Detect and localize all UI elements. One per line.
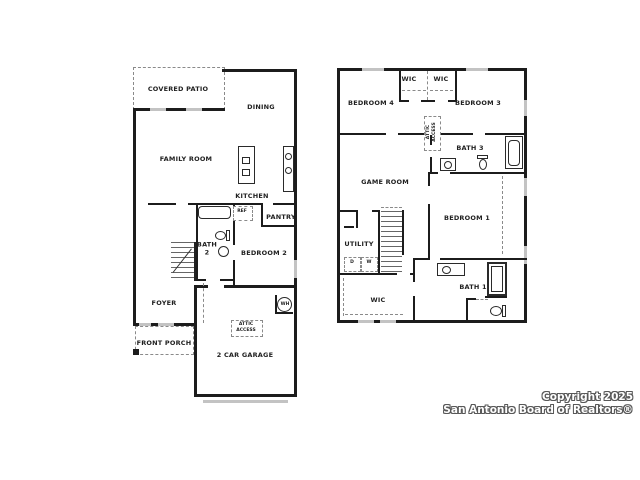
wall — [410, 273, 415, 275]
room-label-game-room: GAME ROOM — [361, 178, 409, 186]
room-label-pantry: PANTRY — [266, 213, 296, 221]
label-refrigerator: REF — [237, 209, 247, 215]
room-label-bedroom-3: BEDROOM 3 — [455, 99, 501, 107]
staircase — [381, 211, 402, 273]
sink-icon — [442, 266, 451, 274]
room-label-front-porch: FRONT PORCH — [137, 339, 192, 347]
wall — [466, 298, 476, 300]
wall — [455, 71, 457, 100]
kitchen-island — [238, 146, 255, 184]
toilet-icon — [479, 159, 487, 170]
wall — [402, 210, 404, 255]
wall — [188, 203, 261, 205]
wall — [261, 203, 263, 226]
window — [380, 320, 396, 323]
room-label-covered-patio: COVERED PATIO — [148, 85, 208, 93]
stair-opening-dashed — [381, 207, 402, 208]
wall — [413, 296, 415, 322]
toilet-tank — [502, 305, 506, 317]
wall — [378, 210, 380, 275]
label-water-heater: WH — [281, 302, 290, 308]
label-attic-access: ATTIC ACCESS — [233, 322, 259, 334]
window — [186, 108, 202, 111]
wall — [294, 69, 297, 288]
wall — [428, 172, 430, 186]
window — [358, 320, 374, 323]
closet-shelf-dashed — [343, 278, 344, 316]
room-label-bath-3: BATH 3 — [456, 144, 483, 152]
cooktop — [242, 169, 250, 176]
label-washer: W — [367, 260, 372, 266]
room-label-kitchen: KITCHEN — [235, 192, 268, 200]
copyright-line2: San Antonio Board of Realtors® — [443, 404, 633, 417]
room-label-wic-right: WIC — [434, 75, 449, 83]
window — [362, 68, 384, 71]
wall — [337, 68, 340, 323]
garage-door — [203, 400, 288, 403]
room-label-wic-left: WIC — [402, 75, 417, 83]
room-label-bedroom-2: BEDROOM 2 — [241, 249, 287, 257]
window — [524, 178, 527, 196]
wall — [194, 394, 297, 397]
wall — [340, 133, 386, 135]
wall — [413, 258, 430, 260]
wall — [133, 108, 225, 111]
wall — [294, 285, 297, 397]
bedroom1-dashed-line — [502, 176, 503, 254]
copyright-line1: Copyright 2025 — [443, 391, 633, 404]
window — [466, 68, 488, 71]
closet-shelf-dashed — [430, 90, 453, 91]
floor-plan-image: COVERED PATIO DINING FAMILY ROOM KITCHEN… — [0, 0, 640, 480]
wall — [233, 260, 235, 287]
wall — [398, 133, 424, 135]
room-label-wic-primary: WIC — [371, 296, 386, 304]
wall — [430, 172, 438, 174]
wall — [440, 258, 527, 260]
room-label-bath-1: BATH 1 — [459, 283, 486, 291]
closet-divider-dashed — [427, 71, 428, 100]
wall — [485, 133, 527, 135]
wall — [428, 204, 430, 260]
room-label-bath-2: BATH 2 — [194, 241, 220, 258]
window — [294, 260, 297, 278]
wall — [344, 226, 354, 228]
wall — [133, 108, 136, 326]
wall — [148, 203, 176, 205]
room-label-utility: UTILITY — [344, 240, 373, 248]
label-attic-access: ATTIC ACCESS — [426, 118, 438, 146]
wall — [421, 100, 435, 102]
closet-shelf-dashed — [345, 314, 403, 315]
door-opening-dashed — [476, 299, 488, 300]
wall — [413, 258, 415, 282]
porch-column — [133, 349, 139, 355]
sink-icon — [444, 161, 452, 169]
room-label-foyer: FOYER — [152, 299, 177, 307]
wall — [485, 296, 507, 298]
window — [524, 246, 527, 264]
bathtub — [198, 206, 231, 219]
room-label-bedroom-1: BEDROOM 1 — [444, 214, 490, 222]
hall-divider-dashed — [203, 283, 204, 323]
wall — [337, 273, 397, 275]
toilet-tank — [226, 230, 230, 241]
room-label-dining: DINING — [247, 103, 275, 111]
staircase — [171, 242, 196, 281]
wall — [450, 172, 527, 174]
room-label-bedroom-4: BEDROOM 4 — [348, 99, 394, 107]
wall — [439, 133, 473, 135]
closet-shelf-dashed — [402, 90, 426, 91]
wall — [399, 100, 409, 102]
window — [524, 100, 527, 116]
wall — [466, 298, 468, 322]
kitchen-sink-icon — [285, 167, 292, 174]
wall — [356, 212, 358, 228]
kitchen-sink-icon — [285, 153, 292, 160]
label-dryer: D — [350, 260, 354, 266]
wall — [261, 225, 297, 227]
toilet-icon — [215, 231, 226, 240]
wall — [273, 203, 297, 205]
wall — [222, 69, 297, 72]
cooktop — [242, 157, 250, 164]
window — [150, 108, 166, 111]
wall — [275, 312, 293, 314]
room-label-family-room: FAMILY ROOM — [160, 155, 212, 163]
bathtub-inner — [508, 140, 520, 166]
wall — [196, 279, 206, 281]
shower — [487, 262, 507, 296]
toilet-icon — [490, 306, 502, 316]
wall — [194, 285, 197, 397]
copyright-notice: Copyright 2025 San Antonio Board of Real… — [443, 391, 633, 416]
room-label-garage: 2 CAR GARAGE — [217, 351, 273, 359]
